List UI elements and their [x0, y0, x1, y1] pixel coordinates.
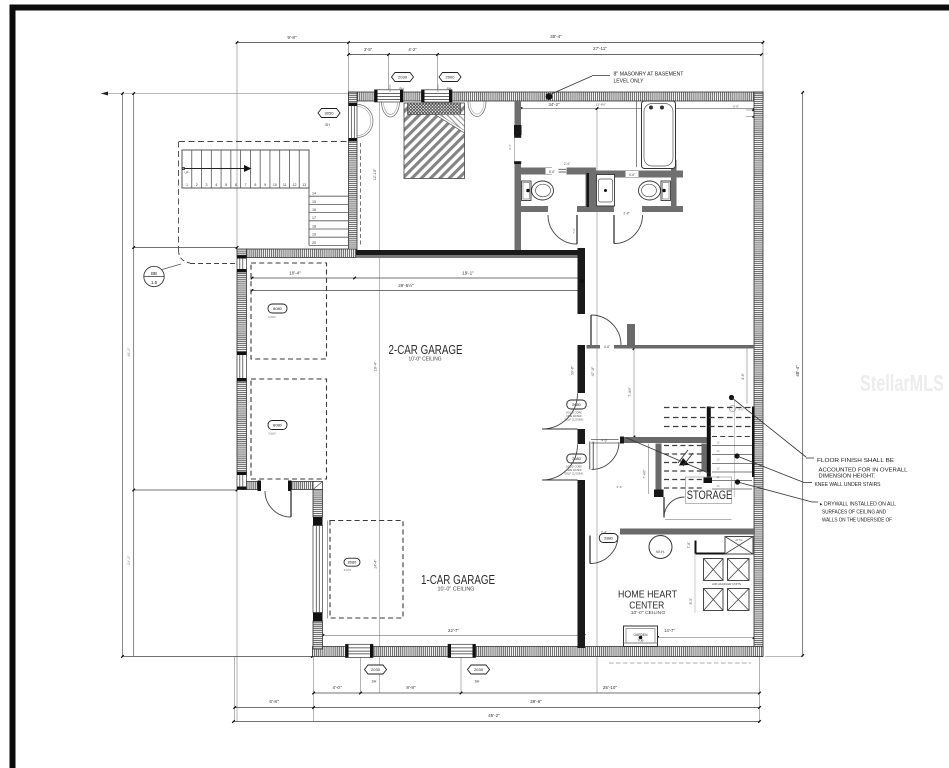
svg-text:3'-5": 3'-5" — [364, 47, 373, 52]
svg-text:19'-4": 19'-4" — [374, 361, 378, 371]
svg-text:7'-4½": 7'-4½" — [628, 386, 632, 396]
svg-text:22'-7": 22'-7" — [448, 628, 459, 633]
svg-text:10'-0" CEILING: 10'-0" CEILING — [631, 610, 666, 615]
svg-text:33'-8": 33'-8" — [571, 365, 575, 374]
svg-text:FLOOR FINISH SHALL BE: FLOOR FINISH SHALL BE — [817, 458, 895, 464]
svg-text:11: 11 — [283, 183, 287, 187]
svg-text:6'-8": 6'-8" — [269, 699, 279, 704]
svg-text:10'-4": 10'-4" — [289, 271, 301, 276]
svg-text:1-CAR GARAGE: 1-CAR GARAGE — [421, 573, 495, 587]
svg-text:2: 2 — [196, 183, 198, 187]
svg-text:14'-7": 14'-7" — [664, 628, 675, 633]
svg-text:8: 8 — [254, 183, 256, 187]
svg-text:1: 1 — [186, 183, 188, 187]
svg-text:13: 13 — [302, 183, 306, 187]
svg-text:8'-5": 8'-5" — [689, 597, 693, 605]
svg-text:7'-4½": 7'-4½" — [643, 469, 647, 478]
svg-text:SOLID CORE: SOLID CORE — [566, 410, 582, 414]
svg-text:48'-4": 48'-4" — [795, 365, 800, 377]
svg-text:UP: UP — [185, 171, 189, 175]
svg-text:2'-8": 2'-8" — [623, 212, 629, 216]
svg-text:StellarMLS: StellarMLS — [860, 370, 944, 396]
svg-text:SELF CLOSING: SELF CLOSING — [565, 472, 584, 476]
svg-text:▸ DRYWALL INSTALLED ON ALL: ▸ DRYWALL INSTALLED ON ALL — [820, 502, 896, 508]
svg-text:KNEE WALL UNDER STAIRS: KNEE WALL UNDER STAIRS — [815, 482, 882, 488]
svg-text:SH: SH — [447, 87, 452, 91]
svg-text:WALLS ON THE UNDERSIDE OF: WALLS ON THE UNDERSIDE OF — [822, 518, 892, 524]
svg-text:BB: BB — [151, 271, 157, 276]
svg-text:SH: SH — [325, 123, 330, 127]
svg-text:8'-8": 8'-8" — [406, 685, 416, 690]
svg-text:2680: 2680 — [572, 402, 581, 407]
svg-text:6'-6": 6'-6" — [733, 105, 739, 109]
svg-text:25'-10": 25'-10" — [603, 685, 618, 690]
svg-text:5'-6": 5'-6" — [549, 170, 555, 174]
svg-text:HOME HEART: HOME HEART — [618, 589, 677, 600]
svg-text:SH: SH — [372, 680, 377, 684]
svg-text:3: 3 — [206, 183, 208, 187]
svg-text:SH: SH — [475, 680, 480, 684]
svg-text:7'-0": 7'-0" — [572, 228, 576, 234]
svg-text:15: 15 — [312, 200, 316, 204]
svg-text:8080: 8080 — [273, 306, 282, 311]
svg-text:12: 12 — [292, 183, 296, 187]
svg-text:9: 9 — [264, 183, 266, 187]
svg-text:47'-0": 47'-0" — [591, 366, 595, 376]
svg-text:12'-6½": 12'-6½" — [596, 103, 606, 107]
svg-text:ATTIC: ATTIC — [735, 538, 742, 542]
svg-text:19: 19 — [312, 233, 316, 237]
svg-text:17: 17 — [312, 216, 316, 220]
svg-text:2000: 2000 — [446, 75, 456, 80]
svg-text:10'-0" CEILING: 10'-0" CEILING — [438, 587, 475, 593]
svg-text:FIRE RATED: FIRE RATED — [566, 468, 581, 472]
svg-text:SH: SH — [399, 87, 404, 91]
svg-text:4: 4 — [215, 183, 217, 187]
svg-text:38'-6": 38'-6" — [530, 699, 542, 704]
svg-text:24'-4": 24'-4" — [127, 555, 131, 565]
svg-text:4'-6": 4'-6" — [601, 439, 607, 443]
svg-text:18: 18 — [312, 224, 316, 228]
svg-text:4'-6": 4'-6" — [741, 372, 745, 380]
svg-text:10: 10 — [273, 183, 277, 187]
svg-text:SURFACES OF CEILING AND: SURFACES OF CEILING AND — [822, 510, 886, 516]
svg-text:4'-2": 4'-2" — [408, 47, 417, 52]
svg-text:45'-2": 45'-2" — [488, 713, 500, 718]
svg-text:8080: 8080 — [348, 560, 357, 565]
svg-text:4'-0": 4'-0" — [332, 685, 342, 690]
svg-text:1.5: 1.5 — [151, 280, 158, 285]
svg-text:4'-6": 4'-6" — [629, 173, 635, 177]
svg-text:4'-6": 4'-6" — [617, 485, 623, 489]
svg-text:2030: 2030 — [398, 75, 408, 80]
svg-text:LEVEL ONLY: LEVEL ONLY — [614, 79, 645, 85]
svg-text:5: 5 — [225, 183, 227, 187]
svg-text:4'-6": 4'-6" — [604, 345, 610, 349]
svg-text:19'-1": 19'-1" — [462, 271, 474, 276]
svg-text:9'0x8'0: 9'0x8'0 — [268, 316, 276, 319]
svg-text:48'-4": 48'-4" — [127, 347, 131, 357]
svg-text:16: 16 — [312, 208, 316, 212]
svg-text:DIMENSION HEIGHT.: DIMENSION HEIGHT. — [819, 474, 876, 480]
svg-text:27'-11": 27'-11" — [593, 46, 607, 51]
svg-text:9'0x8'0: 9'0x8'0 — [344, 569, 352, 572]
svg-text:10'-0" CEILING: 10'-0" CEILING — [409, 357, 442, 363]
svg-text:14'-4": 14'-4" — [374, 559, 378, 569]
svg-text:2'-4": 2'-4" — [564, 162, 570, 166]
svg-text:ACCOUNTED FOR IN OVERALL: ACCOUNTED FOR IN OVERALL — [819, 468, 908, 474]
svg-text:2-CAR GARAGE: 2-CAR GARAGE — [389, 343, 463, 357]
svg-text:7: 7 — [245, 183, 247, 187]
svg-text:6'-1": 6'-1" — [508, 144, 512, 150]
svg-text:STORAGE: STORAGE — [687, 488, 733, 502]
svg-text:9'-8": 9'-8" — [287, 35, 297, 40]
svg-text:35'-4": 35'-4" — [550, 34, 562, 39]
svg-text:2880: 2880 — [604, 536, 613, 541]
svg-text:8080: 8080 — [273, 423, 282, 428]
svg-text:9'0x8'0: 9'0x8'0 — [268, 432, 276, 435]
svg-text:AIR HANDLER UNITS: AIR HANDLER UNITS — [712, 582, 741, 586]
svg-text:29'-5½": 29'-5½" — [398, 282, 414, 288]
svg-text:W.H.: W.H. — [656, 549, 665, 554]
svg-text:6: 6 — [235, 183, 237, 187]
svg-text:3050: 3050 — [325, 111, 335, 116]
svg-text:8" MASONRY AT BASEMENT: 8" MASONRY AT BASEMENT — [614, 72, 685, 78]
svg-text:20: 20 — [312, 241, 316, 245]
svg-text:14: 14 — [312, 192, 316, 196]
svg-text:2030: 2030 — [371, 667, 381, 672]
svg-text:34'-2": 34'-2" — [548, 102, 560, 107]
svg-text:12'-10": 12'-10" — [373, 168, 377, 180]
svg-text:2030: 2030 — [474, 667, 484, 672]
svg-text:9'-0": 9'-0" — [739, 408, 745, 412]
svg-text:7'-8": 7'-8" — [687, 541, 691, 549]
